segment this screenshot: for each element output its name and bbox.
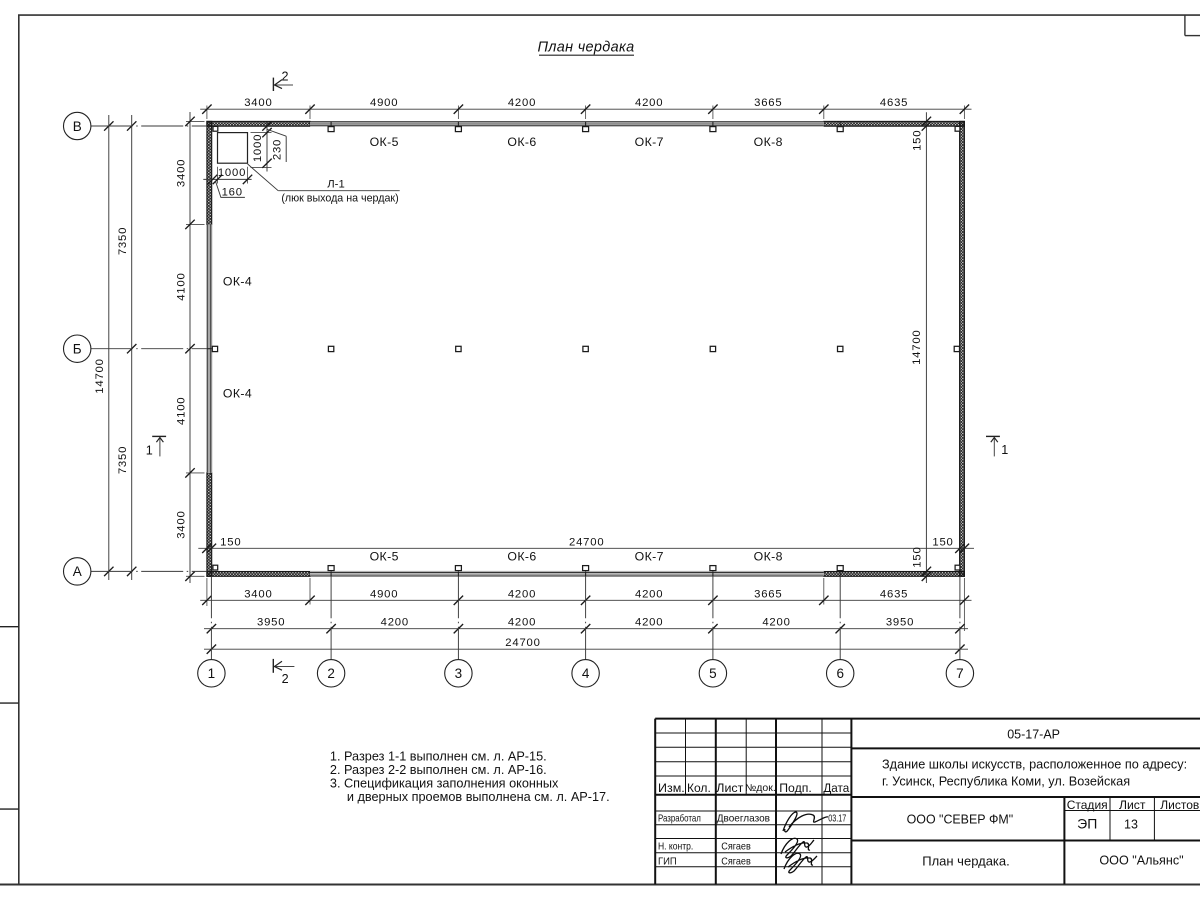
svg-text:1000: 1000 [218, 167, 246, 179]
svg-text:Изм.: Изм. [658, 781, 685, 795]
svg-text:1: 1 [208, 666, 216, 681]
svg-text:4200: 4200 [508, 617, 536, 629]
svg-text:3665: 3665 [754, 97, 782, 109]
svg-text:ОК-5: ОК-5 [370, 550, 399, 564]
svg-text:4200: 4200 [762, 617, 790, 629]
svg-text:1000: 1000 [252, 134, 264, 162]
svg-text:и дверных проемов выполнена см: и дверных проемов выполнена см. л. АР-17… [347, 790, 610, 804]
svg-text:В: В [73, 119, 82, 134]
svg-text:Л-1: Л-1 [327, 179, 344, 191]
svg-text:4200: 4200 [381, 617, 409, 629]
svg-text:1: 1 [146, 444, 153, 458]
svg-text:150: 150 [220, 536, 241, 548]
svg-text:ЭП: ЭП [1077, 816, 1097, 832]
svg-text:ОК-8: ОК-8 [754, 135, 783, 149]
svg-text:Дата: Дата [823, 781, 849, 795]
svg-text:Разработал: Разработал [658, 813, 701, 825]
svg-text:ОК-5: ОК-5 [370, 135, 399, 149]
svg-text:150: 150 [912, 546, 924, 567]
svg-text:160: 160 [222, 186, 243, 198]
svg-text:6: 6 [836, 666, 844, 681]
svg-text:3950: 3950 [257, 617, 285, 629]
svg-text:230: 230 [272, 139, 284, 160]
svg-text:4200: 4200 [635, 97, 663, 109]
svg-text:1: 1 [1001, 443, 1008, 457]
svg-text:14700: 14700 [94, 358, 106, 393]
svg-text:Стадия: Стадия [1067, 798, 1108, 812]
svg-text:13: 13 [1124, 818, 1138, 832]
svg-text:Лист: Лист [1119, 798, 1146, 812]
svg-text:4900: 4900 [370, 588, 398, 600]
svg-text:3665: 3665 [754, 588, 782, 600]
svg-text:4100: 4100 [175, 397, 187, 425]
svg-text:2: 2 [327, 666, 335, 681]
svg-text:2. Разрез 2-2 выполнен см. л.: 2. Разрез 2-2 выполнен см. л. АР-16. [330, 763, 547, 777]
svg-text:3400: 3400 [175, 159, 187, 187]
svg-text:Сягаев: Сягаев [721, 841, 751, 853]
svg-text:ОК-4: ОК-4 [223, 274, 252, 288]
svg-text:3400: 3400 [244, 97, 272, 109]
svg-text:14700: 14700 [911, 329, 923, 364]
svg-text:Подп.: Подп. [779, 781, 812, 795]
svg-text:1. Разрез 1-1 выполнен см. л.: 1. Разрез 1-1 выполнен см. л. АР-15. [330, 749, 547, 763]
svg-text:4: 4 [582, 666, 590, 681]
svg-text:7350: 7350 [117, 446, 129, 474]
svg-text:4900: 4900 [370, 97, 398, 109]
svg-text:4200: 4200 [635, 617, 663, 629]
svg-text:ОК-4: ОК-4 [223, 386, 252, 400]
svg-text:2: 2 [281, 69, 288, 83]
svg-text:3400: 3400 [175, 510, 187, 538]
svg-text:№док.: №док. [745, 783, 776, 794]
svg-text:г. Усинск, Республика Коми, ул: г. Усинск, Республика Коми, ул. Возейска… [882, 774, 1130, 788]
svg-text:2: 2 [282, 672, 289, 686]
svg-text:ГИП: ГИП [658, 855, 677, 867]
svg-text:4200: 4200 [635, 588, 663, 600]
svg-text:Двоеглазов: Двоеглазов [717, 813, 771, 825]
svg-text:Сягаев: Сягаев [721, 855, 751, 867]
svg-text:Б: Б [73, 342, 82, 357]
svg-text:150: 150 [911, 130, 923, 151]
svg-text:24700: 24700 [505, 637, 540, 649]
svg-text:7: 7 [956, 666, 964, 681]
svg-text:4100: 4100 [175, 272, 187, 300]
svg-text:4200: 4200 [508, 588, 536, 600]
svg-text:3: 3 [455, 666, 463, 681]
svg-text:Листов: Листов [1160, 798, 1199, 812]
svg-text:План чердака: План чердака [538, 40, 635, 56]
svg-text:А: А [73, 564, 82, 579]
svg-text:ОК-7: ОК-7 [635, 550, 664, 564]
svg-text:5: 5 [709, 666, 717, 681]
svg-text:24700: 24700 [569, 536, 604, 548]
svg-text:3950: 3950 [886, 617, 914, 629]
svg-text:Здание школы искусств, располо: Здание школы искусств, расположенное по … [882, 757, 1187, 771]
svg-text:ОК-6: ОК-6 [507, 550, 536, 564]
svg-text:4635: 4635 [880, 588, 908, 600]
svg-text:ОК-7: ОК-7 [635, 135, 664, 149]
svg-text:(люк выхода на чердак): (люк выхода на чердак) [281, 193, 398, 205]
svg-text:ООО "СЕВЕР ФМ": ООО "СЕВЕР ФМ" [907, 811, 1014, 826]
svg-text:3400: 3400 [244, 588, 272, 600]
svg-text:Н. контр.: Н. контр. [658, 842, 693, 853]
svg-text:ОК-8: ОК-8 [754, 550, 783, 564]
svg-text:4200: 4200 [508, 97, 536, 109]
svg-text:Кол.: Кол. [687, 781, 711, 795]
svg-text:ООО "Альянс": ООО "Альянс" [1099, 853, 1183, 867]
svg-text:7350: 7350 [117, 227, 129, 255]
svg-text:03.17: 03.17 [828, 814, 846, 825]
svg-text:3. Спецификация заполнения око: 3. Спецификация заполнения оконных [330, 777, 559, 791]
svg-text:150: 150 [932, 536, 953, 548]
svg-text:4635: 4635 [880, 97, 908, 109]
svg-text:План чердака.: План чердака. [922, 854, 1010, 869]
svg-text:ОК-6: ОК-6 [507, 135, 536, 149]
svg-text:05-17-АР: 05-17-АР [1007, 728, 1060, 742]
svg-text:Лист: Лист [716, 781, 743, 795]
